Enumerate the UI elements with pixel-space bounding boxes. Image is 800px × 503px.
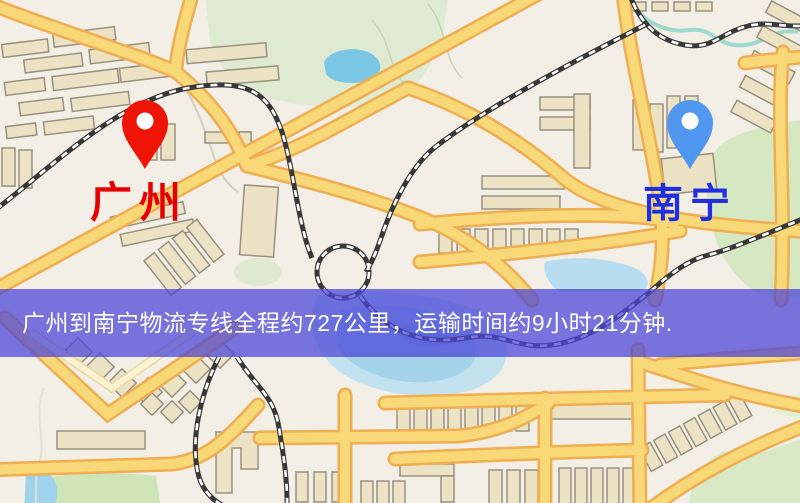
map-canvas[interactable] [0, 0, 800, 503]
map-viewport: 广州 南宁 广州到南宁物流专线全程约727公里，运输时间约9小时21分钟. [0, 0, 800, 503]
route-info-banner: 广州到南宁物流专线全程约727公里，运输时间约9小时21分钟. [0, 289, 800, 357]
route-info-text: 广州到南宁物流专线全程约727公里，运输时间约9小时21分钟. [22, 310, 673, 336]
